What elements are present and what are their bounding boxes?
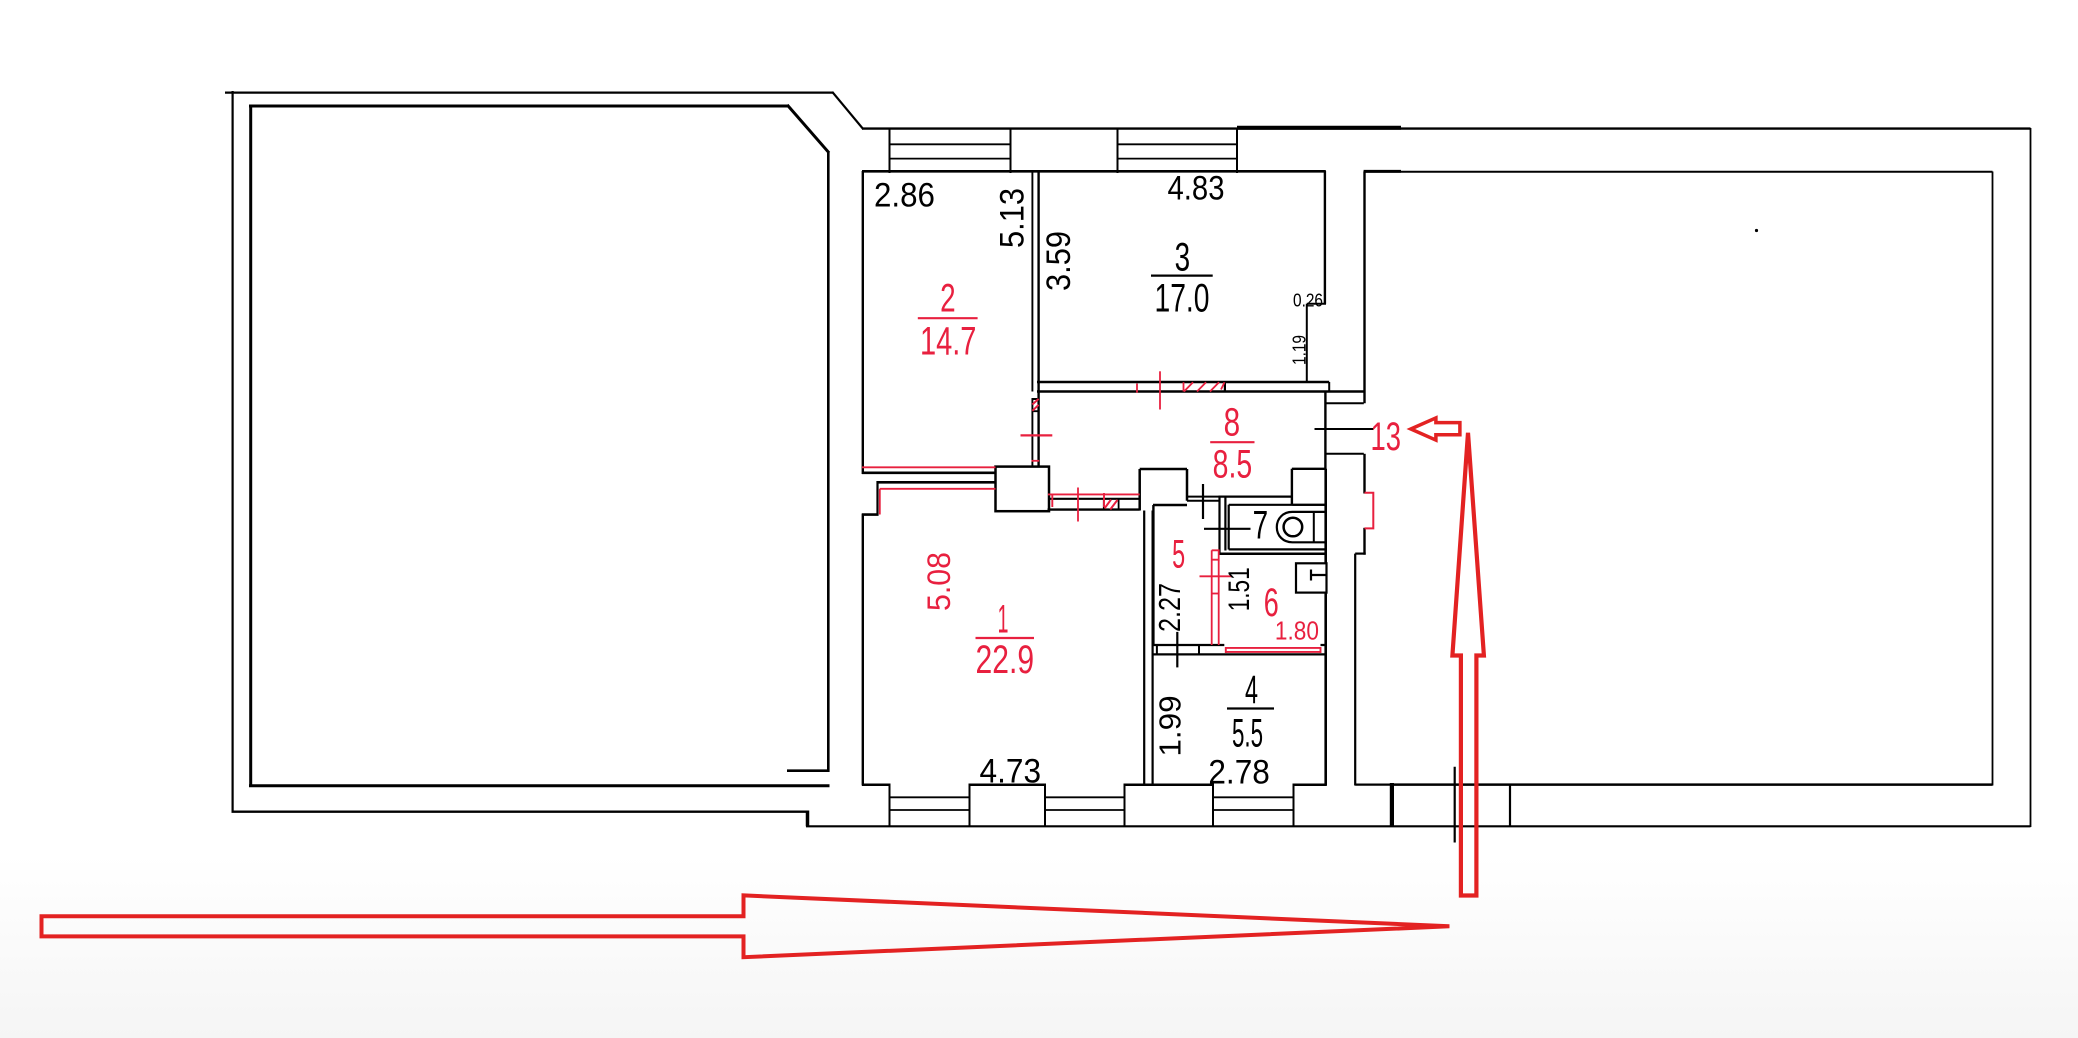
- svg-text:22.9: 22.9: [976, 638, 1035, 682]
- svg-text:1.99: 1.99: [1153, 696, 1188, 757]
- svg-text:2: 2: [940, 277, 956, 321]
- svg-text:3: 3: [1175, 236, 1191, 280]
- svg-text:1.19: 1.19: [1289, 335, 1309, 365]
- svg-text:1: 1: [998, 598, 1009, 642]
- svg-text:5.08: 5.08: [921, 552, 957, 611]
- svg-text:2.86: 2.86: [874, 177, 935, 215]
- svg-text:8.5: 8.5: [1213, 443, 1253, 487]
- svg-text:5.13: 5.13: [994, 188, 1032, 248]
- svg-text:4: 4: [1245, 668, 1258, 712]
- svg-text:2.27: 2.27: [1152, 583, 1187, 632]
- svg-text:3.59: 3.59: [1040, 231, 1078, 291]
- svg-text:7: 7: [1253, 504, 1269, 548]
- svg-text:13: 13: [1371, 415, 1402, 459]
- svg-text:17.0: 17.0: [1155, 276, 1210, 320]
- svg-text:0.26: 0.26: [1293, 290, 1323, 310]
- svg-text:5.5: 5.5: [1232, 712, 1263, 756]
- svg-text:8: 8: [1224, 400, 1241, 444]
- svg-text:5: 5: [1172, 533, 1185, 577]
- svg-text:14.7: 14.7: [920, 320, 977, 364]
- svg-text:4.83: 4.83: [1168, 170, 1225, 208]
- svg-text:1.51: 1.51: [1223, 567, 1256, 611]
- svg-text:1.80: 1.80: [1275, 615, 1319, 645]
- svg-text:4.73: 4.73: [980, 752, 1042, 790]
- svg-text:2.78: 2.78: [1208, 754, 1270, 792]
